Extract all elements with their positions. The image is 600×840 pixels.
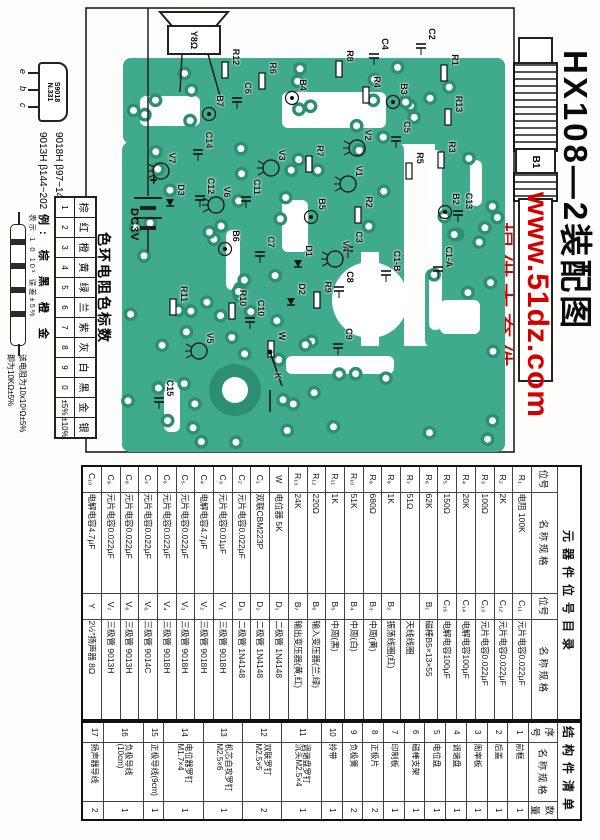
- part-quantity: 2: [243, 801, 282, 820]
- serial-number: 7: [383, 722, 404, 742]
- component-spec: 中周(白): [344, 619, 363, 720]
- part-quantity: 1: [321, 801, 342, 820]
- color-code-column: 灰 8: [56, 338, 95, 358]
- color-value-cell: 5: [56, 278, 74, 297]
- component-spec: 元片电容0.022μF: [157, 492, 176, 593]
- component-spec: 元片电容0.01μF: [214, 492, 233, 593]
- ref-designator: B₇: [288, 593, 307, 619]
- col-header-pos-2: 位号: [532, 593, 558, 619]
- structural-row: 17 扬声器导线 2: [82, 722, 104, 820]
- ref-designator: B₅: [326, 593, 345, 619]
- ref-designator: C₃: [214, 466, 233, 492]
- ref-designator: C₄: [195, 466, 214, 492]
- pcb-component-label: R12: [231, 49, 241, 66]
- pcb-component-label: V2: [363, 129, 373, 140]
- component-spec: 元片电容0.022μF: [475, 619, 494, 720]
- pcb-component-label: V7: [167, 152, 177, 163]
- part-quantity: 1: [104, 801, 143, 820]
- structural-row: 9 负极簧 2: [342, 722, 363, 820]
- pcb-component-label: B3: [399, 83, 409, 95]
- pcb-component-label: D1: [304, 245, 314, 257]
- component-row: C₆ 元片电容0.022μF V₄ 三极管 9018H: [157, 466, 176, 720]
- color-code-column: 黄 4: [56, 258, 95, 278]
- part-quantity: 1: [203, 801, 242, 820]
- component-row: R₁ 电阻 100K C₁₁ 元片电容0.022μF: [513, 466, 532, 720]
- color-value-cell: 1: [56, 198, 74, 217]
- structural-row: 10 拎带 1: [321, 722, 342, 820]
- pcb-component-label: C1-A: [444, 246, 454, 267]
- pcb-component-label: R6: [268, 62, 278, 74]
- component-spec: 51Ω: [401, 492, 420, 593]
- ref-designator: R₃: [475, 466, 494, 492]
- pin-e: [28, 72, 40, 74]
- structural-row: 7 印制板 1: [383, 722, 404, 820]
- pcb-component-label: R8: [345, 50, 355, 62]
- structural-part-name: 磁棒支架: [404, 742, 425, 801]
- component-spec: 元片电容0.022μF: [176, 492, 195, 593]
- col-header-name-1: 名 称 规 格: [532, 492, 558, 593]
- structural-part-name: 正极片: [363, 742, 384, 801]
- col-header-no: 序号: [529, 722, 558, 742]
- structural-row: 12 双联罗钉 M2.5×5 2: [243, 722, 282, 820]
- structural-row: 8 正极片 2: [363, 722, 384, 820]
- ref-designator: C₁₅: [438, 593, 457, 619]
- component-spec: 中周(黑): [326, 619, 345, 720]
- pcb-component-label: R3: [447, 141, 457, 153]
- ref-designator: Y: [82, 593, 101, 619]
- serial-number: 8: [363, 722, 384, 742]
- component-row: R₃ 100Ω C₁₃ 元片电容0.022μF: [475, 466, 494, 720]
- component-spec: 三极管 9018H: [195, 619, 214, 720]
- serial-number: 10: [321, 722, 342, 742]
- structural-part-name: 电位盘: [425, 742, 446, 801]
- part-quantity: 2: [363, 801, 384, 820]
- structural-part-name: 负极导线(10cm): [104, 742, 143, 801]
- band-1: [11, 239, 25, 245]
- pcb-component-label: B4: [298, 79, 308, 91]
- color-code-column: 银 ±10%: [56, 418, 95, 437]
- component-spec: 电解电容100μF: [457, 619, 476, 720]
- lead-left: [18, 212, 20, 224]
- structural-part-name: 拎带: [321, 742, 342, 801]
- ref-designator: C₁₁: [513, 593, 532, 619]
- ref-designator: V₄: [157, 593, 176, 619]
- pcb-diagram: R12C6R6B4R8R4B3C4C2R1R13B7C14V7D3C12V6C1…: [80, 0, 518, 465]
- ref-designator: V₁: [214, 593, 233, 619]
- component-spec: 62K: [419, 492, 438, 593]
- beta-spec-9013: 9013H β144~202: [34, 132, 50, 209]
- pcb-component-label: R2: [364, 196, 374, 208]
- structural-part-name: 机芯自攻罗钉 M2.5×6: [203, 742, 242, 801]
- transistor-marking-1: S9018: [53, 82, 60, 102]
- component-spec: 电解电容4.7μF: [195, 492, 214, 593]
- pin-label-e: e: [18, 69, 28, 74]
- ref-designator: V₂: [195, 593, 214, 619]
- battery-plus-sign: +: [146, 176, 162, 184]
- color-value-cell: 4: [56, 258, 74, 277]
- pin-c: [28, 106, 40, 108]
- color-code-column: 紫 7: [56, 318, 95, 338]
- calc-line-1: 该电阻为10x10³Ω±5%: [16, 354, 28, 432]
- color-name-cell: 红: [74, 218, 95, 237]
- component-spec: 输出变压器(黄,红): [288, 619, 307, 720]
- component-row: C₁ 双联CBM223P D₂ 二极管 1N4148: [251, 466, 270, 720]
- color-name-cell: 棕: [74, 198, 95, 217]
- component-spec: 680Ω: [363, 492, 382, 593]
- structural-row: 11 调谐盘罗钉 沉头M2.5×4 1: [282, 722, 321, 820]
- ref-designator: D₁: [270, 593, 289, 619]
- component-spec: 二极管 1N4148: [251, 619, 270, 720]
- structural-table-title: 结构件清单: [558, 722, 582, 820]
- col-header-name-2: 名 称 规 格: [532, 619, 558, 720]
- structural-row: 4 调谐盘 1: [446, 722, 467, 820]
- component-spec: 元片电容0.022μF: [101, 492, 120, 593]
- ref-designator: V₆: [120, 593, 139, 619]
- color-value-cell: 3: [56, 238, 74, 257]
- ref-designator: B₆: [307, 593, 326, 619]
- serial-number: 11: [282, 722, 321, 742]
- part-quantity: 1: [143, 801, 164, 820]
- component-spec: 三极管 9018H: [214, 619, 233, 720]
- battery-voltage-label: DC3V: [128, 208, 140, 241]
- color-name-cell: 金: [74, 398, 95, 417]
- ref-designator: R₁₁: [326, 466, 345, 492]
- structural-row: 2 后盖 1: [487, 722, 508, 820]
- ref-designator: R₇: [401, 466, 420, 492]
- component-row: R₁₁ 1K B₅ 中周(黑): [326, 466, 345, 720]
- structural-part-name: 印制板: [383, 742, 404, 801]
- transistor-marking-2: N.331: [46, 83, 53, 102]
- ref-designator: D₂: [251, 593, 270, 619]
- color-code-column: 黑 0: [56, 378, 95, 398]
- rotated-canvas: HX108—2装配图 B1 www.51dz.com 提供本套件: [0, 0, 600, 840]
- component-spec: 天线线圈: [401, 619, 420, 720]
- color-code-column: 红 2: [56, 218, 95, 238]
- serial-number: 15: [143, 722, 164, 742]
- component-row: R₁₀ 51K B₄ 中周(白): [344, 466, 363, 720]
- speaker-label: Y8Ω: [189, 31, 199, 49]
- component-row: R₅ 150Ω C₁₅ 电解电容100μF: [438, 466, 457, 720]
- pcb-labels: R12C6R6B4R8R4B3C4C2R1R13B7C14V7D3C12V6C1…: [80, 0, 600, 465]
- component-spec: 电位器 5K: [270, 492, 289, 593]
- component-spec: 中周(黄): [363, 619, 382, 720]
- ref-designator: [401, 593, 420, 619]
- component-row: R₈ 1K B₂ 振荡线圈(红): [382, 466, 401, 720]
- color-name-cell: 黄: [74, 258, 95, 277]
- pcb-component-label: R4: [372, 76, 382, 88]
- ref-designator: C₂: [232, 466, 251, 492]
- component-row: C₁₀ 电解电容4.7μF Y 2½″扬声器 8Ω: [82, 466, 101, 720]
- pcb-component-label: C15: [165, 380, 175, 397]
- structural-row: 6 磁棒支架 1: [404, 722, 425, 820]
- pcb-component-label: V1: [354, 165, 364, 176]
- component-spec: 二极管 1N4148: [270, 619, 289, 720]
- part-quantity: 1: [508, 801, 529, 820]
- pcb-component-label: R7: [315, 145, 325, 157]
- pcb-component-label: V3: [277, 149, 287, 160]
- structural-parts-table: 结构件清单 序号 名 称 规 格 数量 1 前框 1: [81, 721, 582, 821]
- component-spec: 三极管 9013H: [120, 619, 139, 720]
- part-quantity: 1: [383, 801, 404, 820]
- resistor-example: 例: 棕 黑 橙 金 表示 1 0 10³ 误差±5% 该电阻为10x10³Ω±…: [2, 214, 52, 434]
- color-code-table: 棕 1 红 2 橙 3 黄 4 绿: [54, 196, 97, 439]
- structural-row: 3 周率板 1: [466, 722, 487, 820]
- pcb-component-label: W: [277, 332, 287, 341]
- ref-designator: R₅: [438, 466, 457, 492]
- component-spec: 元片电容0.022μF: [120, 492, 139, 593]
- pcb-component-label: R13: [454, 96, 464, 113]
- ref-designator: C₁₄: [457, 593, 476, 619]
- color-value-cell: ±5%: [56, 398, 74, 417]
- pcb-component-label: V4: [341, 240, 351, 251]
- pcb-component-label: C10: [256, 300, 266, 317]
- component-spec: 电解电容4.7μF: [82, 492, 101, 593]
- parts-tables: 元器件位号目录 位号 名 称 规 格 位号 名 称 规 格 R₁ 电阻 100K: [81, 465, 582, 821]
- part-quantity: 1: [425, 801, 446, 820]
- pcb-component-label: B5: [317, 198, 327, 210]
- component-row: R₂ 2K C₁₂ 元片电容0.022μF: [494, 466, 513, 720]
- component-spec: 输入变压器(兰,绿): [307, 619, 326, 720]
- pcb-component-label: C14: [204, 132, 214, 149]
- component-spec: 2½″扬声器 8Ω: [82, 619, 101, 720]
- structural-part-name: 调谐盘罗钉 沉头M2.5×4: [282, 742, 321, 801]
- color-value-cell: 7: [56, 318, 74, 337]
- color-name-cell: 灰: [74, 338, 95, 357]
- component-spec: 三极管 9018H: [157, 619, 176, 720]
- color-name-cell: 紫: [74, 318, 95, 337]
- serial-number: 1: [508, 722, 529, 742]
- component-spec: 元片电容0.022μF: [513, 619, 532, 720]
- component-row: R₄ 20K C₁₄ 电解电容100μF: [457, 466, 476, 720]
- color-name-cell: 黑: [74, 378, 95, 397]
- ref-designator: C₁₂: [494, 593, 513, 619]
- color-code-column: 橙 3: [56, 238, 95, 258]
- ref-designator: R₈: [382, 466, 401, 492]
- serial-number: 16: [104, 722, 143, 742]
- color-value-cell: 2: [56, 218, 74, 237]
- page: HX108—2装配图 B1 www.51dz.com 提供本套件: [0, 0, 600, 840]
- color-name-cell: 绿: [74, 278, 95, 297]
- component-row: C₈ 元片电容0.022μF V₆ 三极管 9013H: [120, 466, 139, 720]
- component-row: R₆ 62K B₁ 磁棒B5×13×55: [419, 466, 438, 720]
- color-code-column: 白 9: [56, 358, 95, 378]
- color-value-cell: 0: [56, 378, 74, 397]
- example-note: 表示 1 0 10³ 误差±5%: [27, 214, 38, 318]
- pcb-component-label: V5: [205, 332, 215, 343]
- ref-designator: C₁: [251, 466, 270, 492]
- pcb-component-label: C13: [464, 193, 474, 210]
- component-row: R₇ 51Ω 天线线圈: [401, 466, 420, 720]
- structural-row: 15 正极导线(9cm) 1: [143, 722, 164, 820]
- structural-part-name: 前框: [508, 742, 529, 801]
- serial-number: 9: [342, 722, 363, 742]
- ref-designator: C₁₃: [475, 593, 494, 619]
- component-table-title: 元器件位号目录: [558, 466, 582, 720]
- band-4: [11, 311, 25, 317]
- band-3: [11, 287, 25, 293]
- component-row: R₁₂ 220Ω B₆ 输入变压器(兰,绿): [307, 466, 326, 720]
- color-value-cell: ±10%: [56, 418, 74, 437]
- pcb-component-label: D3: [176, 184, 186, 196]
- pcb-component-label: C5: [402, 121, 412, 133]
- ref-designator: B₃: [363, 593, 382, 619]
- pcb-component-label: R9: [323, 281, 333, 293]
- ref-designator: B₂: [382, 593, 401, 619]
- structural-part-name: 双联罗钉 M2.5×5: [243, 742, 282, 801]
- component-row: C₃ 元片电容0.01μF V₁ 三极管 9018H: [214, 466, 233, 720]
- ref-designator: C₇: [139, 466, 158, 492]
- component-spec: 51K: [344, 492, 363, 593]
- ref-designator: C₁₀: [82, 466, 101, 492]
- structural-row: 14 电位器罗钉 M1.7×4 1: [164, 722, 203, 820]
- ref-designator: R₁₃: [288, 466, 307, 492]
- component-spec: 三极管 9018H: [176, 619, 195, 720]
- transistor-body: S9018 N.331: [38, 62, 68, 122]
- calc-line-2: 即为10KΩ±5%: [4, 354, 16, 432]
- pin-label-c: c: [18, 103, 28, 108]
- structural-part-name: 电位器罗钉 M1.7×4: [164, 742, 203, 801]
- band-2: [11, 263, 25, 269]
- ref-designator: R₉: [363, 466, 382, 492]
- pcb-component-label: D2: [297, 283, 307, 295]
- component-spec: 三极管 9014C: [139, 619, 158, 720]
- pcb-component-label: C6: [243, 82, 253, 94]
- component-row: C₇ 元片电容0.022μF V₅ 三极管 9014C: [139, 466, 158, 720]
- pin-b: [28, 89, 40, 91]
- structural-row: 5 电位盘 1: [425, 722, 446, 820]
- structural-row: 1 前框 1: [508, 722, 529, 820]
- pcb-component-label: C9: [344, 328, 354, 340]
- component-spec: 磁棒B5×13×55: [419, 619, 438, 720]
- col-header-name: 名 称 规 格: [529, 742, 558, 801]
- component-spec: 1K: [326, 492, 345, 593]
- pcb-component-label: C8: [345, 271, 355, 283]
- part-quantity: 2: [82, 801, 104, 820]
- component-spec: 元片电容0.022μF: [232, 492, 251, 593]
- pcb-component-label: C11: [252, 179, 262, 195]
- col-header-qty: 数量: [529, 801, 558, 820]
- component-spec: 振荡线圈(红): [382, 619, 401, 720]
- serial-number: 4: [446, 722, 467, 742]
- serial-number: 5: [425, 722, 446, 742]
- pcb-component-label: B6: [231, 230, 241, 242]
- ref-designator: V₃: [176, 593, 195, 619]
- color-code-column: 绿 5: [56, 278, 95, 298]
- pcb-component-label: C7: [266, 236, 276, 248]
- component-row: C₄ 电解电容4.7μF V₂ 三极管 9018H: [195, 466, 214, 720]
- pcb-component-label: R1: [450, 54, 460, 66]
- ref-designator: V₇: [101, 593, 120, 619]
- component-spec: 220Ω: [307, 492, 326, 593]
- component-spec: 元片电容0.022μF: [494, 619, 513, 720]
- pcb-component-label: C3: [354, 231, 364, 243]
- ref-designator: C₈: [120, 466, 139, 492]
- color-name-cell: 白: [74, 358, 95, 377]
- pcb-component-label: R11: [179, 286, 189, 302]
- pcb-component-label: R10: [238, 290, 248, 307]
- component-row: C₅ 元片电容0.022μF V₃ 三极管 9018H: [176, 466, 195, 720]
- structural-row: 13 机芯自攻罗钉 M2.5×6 1: [203, 722, 242, 820]
- component-spec: 三极管 9013H: [101, 619, 120, 720]
- color-value-cell: 6: [56, 298, 74, 317]
- example-calculation: 该电阻为10x10³Ω±5% 即为10KΩ±5%: [4, 354, 28, 432]
- component-spec: 电解电容100μF: [438, 619, 457, 720]
- pcb-component-label: C1-B: [392, 250, 402, 271]
- col-header-pos-1: 位号: [532, 466, 558, 492]
- ref-designator: R₂: [494, 466, 513, 492]
- serial-number: 3: [466, 722, 487, 742]
- color-code-column: 兰 6: [56, 298, 95, 318]
- component-spec: 150Ω: [438, 492, 457, 593]
- component-row: R₉ 680Ω B₃ 中周(黄): [363, 466, 382, 720]
- component-row: W 电位器 5K D₁ 二极管 1N4148: [270, 466, 289, 720]
- pcb-component-label: R5: [415, 152, 425, 164]
- pcb-component-label: C4: [380, 38, 390, 50]
- structural-part-name: 后盖: [487, 742, 508, 801]
- component-spec: 2K: [494, 492, 513, 593]
- pcb-component-label: B7: [215, 95, 225, 107]
- part-quantity: 1: [466, 801, 487, 820]
- example-bands-text: 例: 棕 黑 橙 金: [36, 214, 52, 345]
- serial-number: 14: [164, 722, 203, 742]
- structural-part-name: 正极导线(9cm): [143, 742, 164, 801]
- serial-number: 2: [487, 722, 508, 742]
- pcb-component-label: V6: [222, 186, 232, 197]
- ref-designator: B₁: [419, 593, 438, 619]
- serial-number: 13: [203, 722, 242, 742]
- component-row: C₉ 元片电容0.022μF V₇ 三极管 9013H: [101, 466, 120, 720]
- ref-designator: V₅: [139, 593, 158, 619]
- ref-designator: R₄: [457, 466, 476, 492]
- ref-designator: B₄: [344, 593, 363, 619]
- component-row: R₁₃ 24K B₇ 输出变压器(黄,红): [288, 466, 307, 720]
- structural-part-name: 调谐盘: [446, 742, 467, 801]
- ref-designator: R₆: [419, 466, 438, 492]
- ref-designator: W: [270, 466, 289, 492]
- ref-designator: R₁₀: [344, 466, 363, 492]
- part-quantity: 1: [164, 801, 203, 820]
- component-spec: 元片电容0.022μF: [139, 492, 158, 593]
- pcb-component-label: K: [273, 373, 283, 380]
- structural-part-name: 扬声器导线: [82, 742, 104, 801]
- color-name-cell: 银: [74, 418, 95, 437]
- component-spec: 100Ω: [475, 492, 494, 593]
- ref-designator: C₆: [157, 466, 176, 492]
- part-quantity: 1: [282, 801, 321, 820]
- color-value-cell: 8: [56, 338, 74, 357]
- color-value-cell: 9: [56, 358, 74, 377]
- pcb-component-label: C12: [206, 178, 216, 195]
- component-list-table: 元器件位号目录 位号 名 称 规 格 位号 名 称 规 格 R₁ 电阻 100K: [81, 465, 582, 721]
- pcb-component-label: C2: [427, 28, 437, 40]
- serial-number: 6: [404, 722, 425, 742]
- component-spec: 20K: [457, 492, 476, 593]
- serial-number: 12: [243, 722, 282, 742]
- component-spec: 24K: [288, 492, 307, 593]
- color-code-column: 棕 1: [56, 198, 95, 218]
- component-spec: 电阻 100K: [513, 492, 532, 593]
- color-name-cell: 兰: [74, 298, 95, 317]
- ref-designator: R₁₂: [307, 466, 326, 492]
- component-row: C₂ 元片电容0.022μF D₃ 二极管 1N4148: [232, 466, 251, 720]
- pin-label-b: b: [18, 86, 28, 91]
- part-quantity: 1: [404, 801, 425, 820]
- structural-part-name: 周率板: [466, 742, 487, 801]
- color-code-column: 金 ±5%: [56, 398, 95, 418]
- transistor-pinout: S9018 N.331 e b c 9018H β97~146 9013H β1…: [2, 28, 68, 208]
- ref-designator: D₃: [232, 593, 251, 619]
- serial-number: 17: [82, 722, 104, 742]
